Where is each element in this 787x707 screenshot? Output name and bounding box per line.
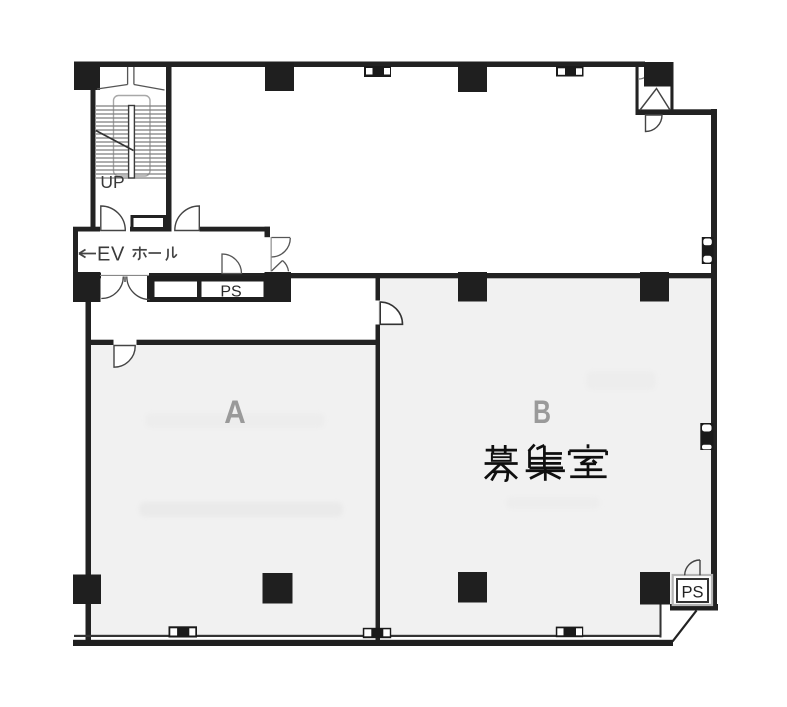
svg-text:EV: EV: [97, 244, 125, 266]
svg-text:PS: PS: [681, 584, 703, 602]
svg-text:A: A: [224, 394, 246, 430]
svg-text:PS: PS: [220, 284, 241, 301]
svg-text:B: B: [533, 394, 551, 430]
svg-text:UP: UP: [100, 172, 124, 192]
